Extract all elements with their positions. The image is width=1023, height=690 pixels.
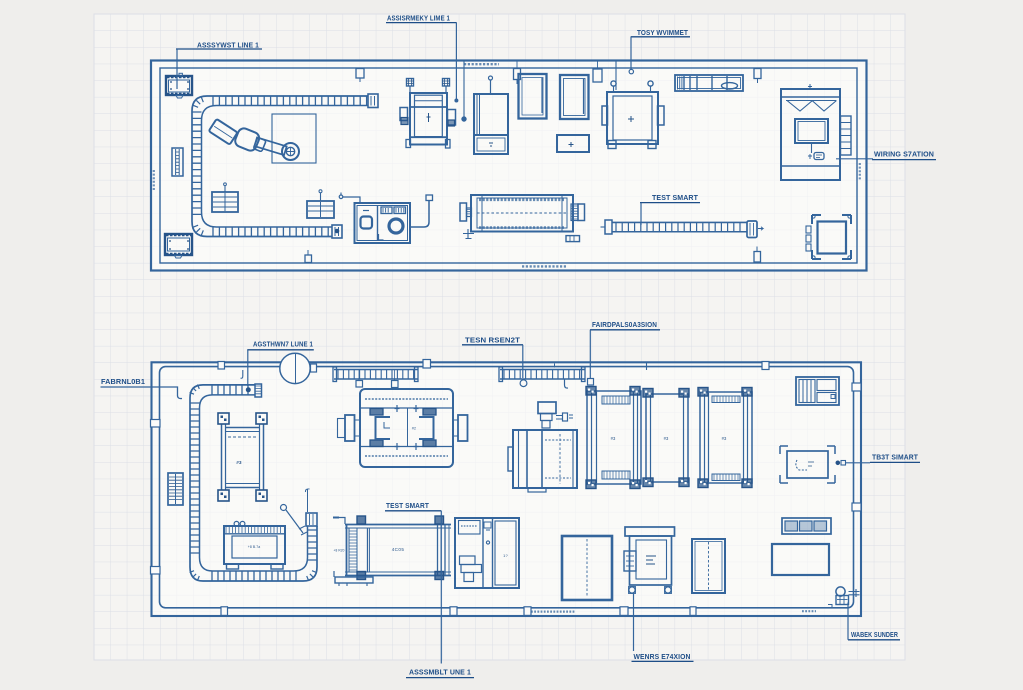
svg-text:4C05: 4C05 — [392, 547, 405, 552]
svg-text:TEST SMART: TEST SMART — [652, 195, 699, 202]
svg-text:#3: #3 — [722, 436, 727, 441]
svg-text:1?: 1? — [503, 553, 508, 558]
svg-text:AGSTHWN7 LUNE 1: AGSTHWN7 LUNE 1 — [253, 341, 313, 348]
svg-text:ASSISRMEKY LIME 1: ASSISRMEKY LIME 1 — [387, 16, 450, 23]
svg-text:WABEK SUNDER: WABEK SUNDER — [851, 632, 898, 639]
svg-text:TOSY WVIMMET: TOSY WVIMMET — [637, 30, 689, 37]
svg-text:WENRS E74XION: WENRS E74XION — [634, 654, 691, 661]
svg-text:#3: #3 — [236, 460, 242, 465]
svg-text:+8 R20: +8 R20 — [334, 549, 345, 553]
svg-text:FABRNL0B1: FABRNL0B1 — [101, 379, 145, 386]
svg-text:#3: #3 — [664, 436, 669, 441]
svg-text:#3: #3 — [611, 436, 616, 441]
svg-text:ASSSMBLT UNE 1: ASSSMBLT UNE 1 — [409, 670, 471, 677]
svg-text:#2: #2 — [412, 427, 416, 431]
svg-text:FAIRDPALS0A3SION: FAIRDPALS0A3SION — [592, 322, 657, 329]
svg-text:TESN RSEN2T: TESN RSEN2T — [465, 338, 521, 345]
svg-text:TB3T SIMART: TB3T SIMART — [872, 455, 919, 462]
svg-text:WIRING S7ATION: WIRING S7ATION — [874, 152, 934, 159]
svg-text:+8 B.7a: +8 B.7a — [248, 545, 260, 549]
svg-text:TEST SMART: TEST SMART — [386, 503, 430, 510]
